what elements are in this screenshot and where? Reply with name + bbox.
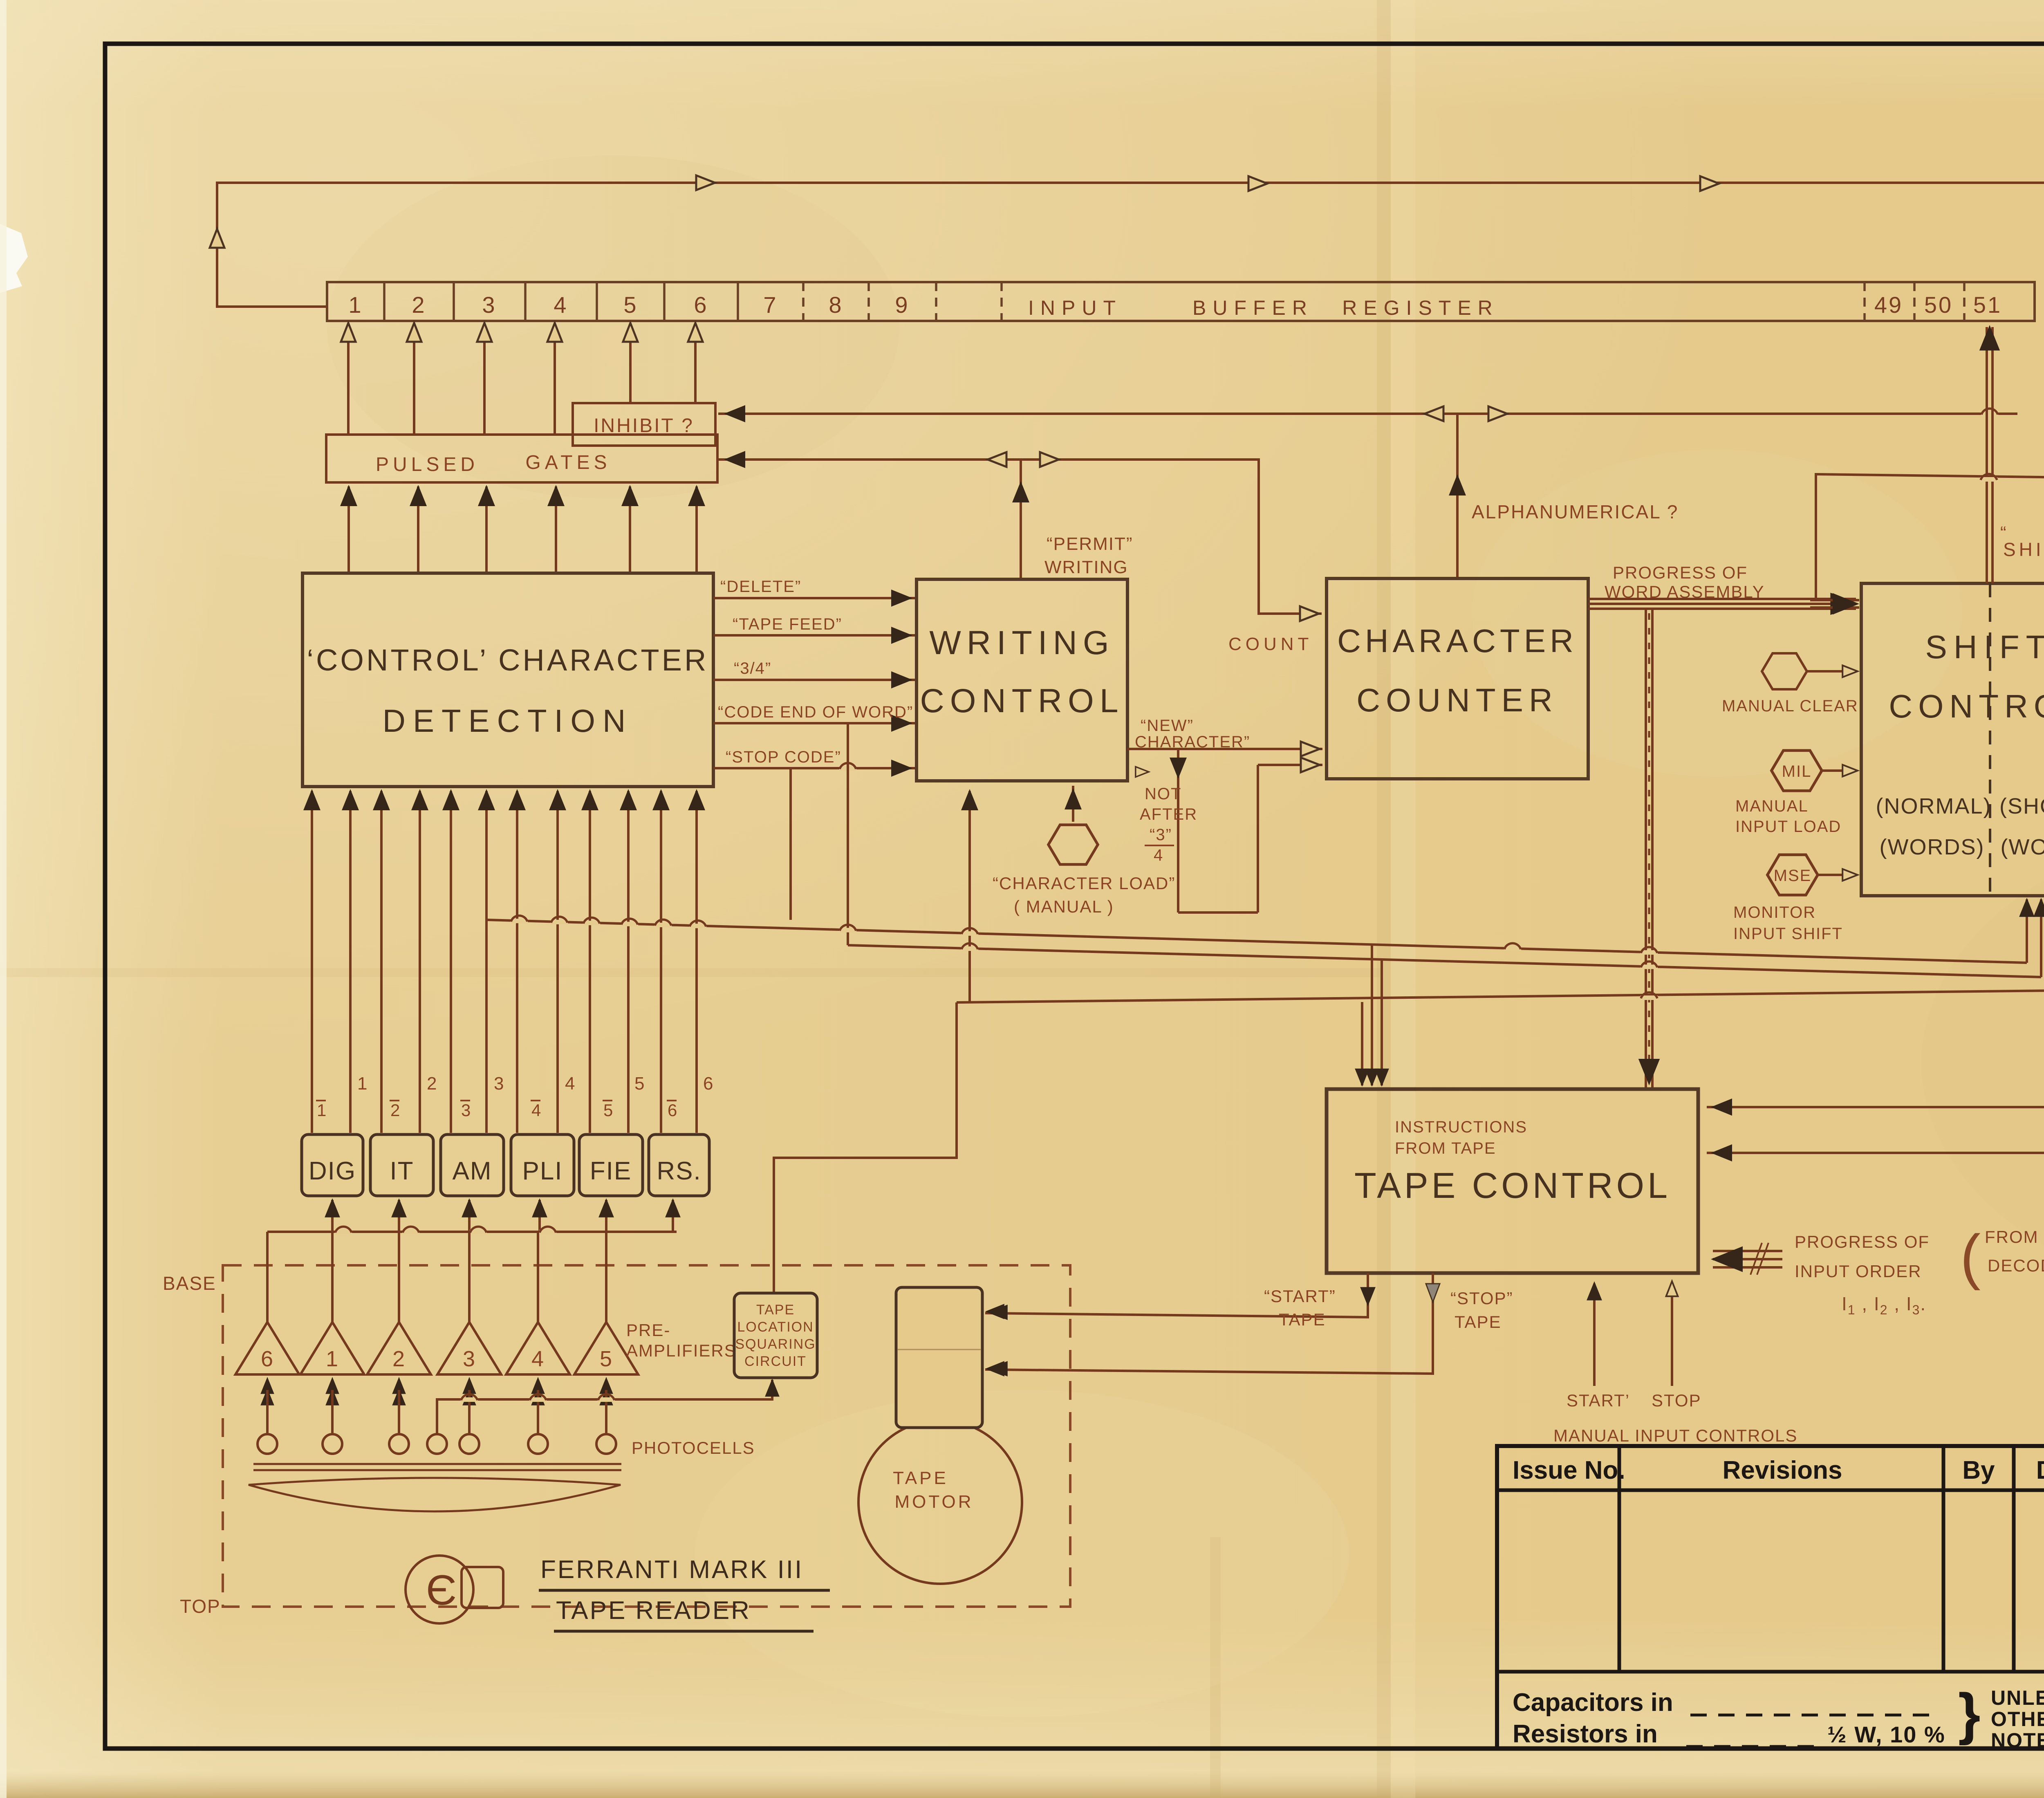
svg-text:INPUT LOAD: INPUT LOAD bbox=[1735, 818, 1841, 836]
svg-text:MOTOR: MOTOR bbox=[895, 1492, 974, 1512]
svg-text:LOCATION: LOCATION bbox=[737, 1319, 814, 1335]
svg-text:2: 2 bbox=[390, 1101, 401, 1120]
svg-text:AFTER: AFTER bbox=[1140, 805, 1197, 823]
svg-text:50: 50 bbox=[1924, 292, 1953, 318]
svg-text:2: 2 bbox=[427, 1074, 437, 1094]
svg-text:DIG: DIG bbox=[309, 1157, 356, 1185]
svg-text:SHIFT: SHIFT bbox=[1925, 629, 2044, 665]
svg-text:FROM TAPE: FROM TAPE bbox=[1395, 1139, 1496, 1157]
svg-text:CHARACTER”: CHARACTER” bbox=[1135, 733, 1250, 751]
svg-text:“TAPE FEED”: “TAPE FEED” bbox=[733, 615, 842, 633]
svg-text:FROM ORDER: FROM ORDER bbox=[1985, 1227, 2044, 1246]
svg-text:6: 6 bbox=[668, 1101, 678, 1120]
svg-text:“CHARACTER LOAD”: “CHARACTER LOAD” bbox=[993, 874, 1175, 893]
svg-text:3: 3 bbox=[461, 1101, 471, 1120]
svg-text:1: 1 bbox=[317, 1101, 327, 1120]
svg-text:3: 3 bbox=[494, 1074, 504, 1094]
svg-text:FIE: FIE bbox=[590, 1157, 632, 1185]
svg-text:SQUARING: SQUARING bbox=[735, 1336, 816, 1352]
svg-text:4: 4 bbox=[531, 1347, 545, 1371]
svg-text:CONTROL: CONTROL bbox=[920, 682, 1124, 720]
svg-text:3: 3 bbox=[463, 1347, 476, 1371]
svg-text:“3”: “3” bbox=[1150, 826, 1172, 844]
svg-text:1: 1 bbox=[326, 1347, 339, 1371]
svg-text:4: 4 bbox=[565, 1074, 576, 1094]
svg-text:RS.: RS. bbox=[657, 1157, 701, 1185]
svg-text:TAPE CONTROL: TAPE CONTROL bbox=[1354, 1165, 1671, 1206]
svg-text:SHIFT: SHIFT bbox=[2003, 539, 2044, 560]
svg-text:CHARACTER: CHARACTER bbox=[1337, 623, 1578, 659]
svg-text:NOTED: NOTED bbox=[1991, 1729, 2044, 1752]
svg-text:Capacitors in: Capacitors in bbox=[1513, 1688, 1673, 1717]
svg-text:PROGRESS OF: PROGRESS OF bbox=[1795, 1232, 1930, 1251]
svg-text:IT: IT bbox=[390, 1157, 414, 1185]
svg-text:WRITING: WRITING bbox=[929, 624, 1114, 661]
svg-text:COUNTER: COUNTER bbox=[1356, 682, 1558, 718]
svg-text:( MANUAL ): ( MANUAL ) bbox=[1014, 897, 1114, 916]
svg-text:“PERMIT”: “PERMIT” bbox=[1047, 534, 1133, 554]
svg-text:7: 7 bbox=[763, 292, 778, 318]
svg-text:NOT: NOT bbox=[1145, 785, 1181, 803]
svg-text:MANUAL CLEAR: MANUAL CLEAR bbox=[1722, 697, 1858, 715]
svg-text:TAPE: TAPE bbox=[756, 1302, 795, 1318]
svg-text:PLI: PLI bbox=[522, 1157, 563, 1185]
svg-text:“STOP”: “STOP” bbox=[1450, 1289, 1513, 1308]
svg-text:1: 1 bbox=[357, 1074, 368, 1094]
svg-text:6: 6 bbox=[694, 292, 708, 318]
svg-text:“CODE END OF WORD”: “CODE END OF WORD” bbox=[718, 703, 913, 721]
svg-text:“3/4”: “3/4” bbox=[734, 659, 771, 677]
svg-text:Є: Є bbox=[426, 1567, 457, 1614]
svg-text:“NEW”: “NEW” bbox=[1141, 717, 1194, 735]
svg-text:INPUT SHIFT: INPUT SHIFT bbox=[1733, 925, 1843, 943]
svg-text:(WORDS): (WORDS) bbox=[2001, 835, 2044, 859]
svg-text:“START”: “START” bbox=[1264, 1287, 1336, 1306]
svg-text:2: 2 bbox=[412, 292, 426, 318]
svg-text:3: 3 bbox=[482, 292, 496, 318]
svg-text:MIL: MIL bbox=[1782, 762, 1812, 780]
svg-text:MSE: MSE bbox=[1774, 867, 1812, 885]
svg-text:CIRCUIT: CIRCUIT bbox=[744, 1354, 807, 1369]
svg-text:8: 8 bbox=[829, 292, 843, 318]
svg-text:WRITING: WRITING bbox=[1044, 557, 1128, 577]
svg-text:TAPE: TAPE bbox=[1455, 1312, 1502, 1332]
svg-text:(WORDS): (WORDS) bbox=[1880, 835, 1985, 859]
svg-text:51: 51 bbox=[1973, 292, 2002, 318]
svg-text:MANUAL INPUT CONTROLS: MANUAL INPUT CONTROLS bbox=[1553, 1426, 1797, 1445]
svg-text:BASE: BASE bbox=[163, 1273, 216, 1294]
svg-text:MANUAL: MANUAL bbox=[1735, 797, 1809, 815]
svg-text:FERRANTI MARK III: FERRANTI MARK III bbox=[540, 1556, 803, 1584]
svg-text:CONTROL: CONTROL bbox=[1889, 688, 2044, 724]
svg-text:AMPLIFIERS: AMPLIFIERS bbox=[626, 1341, 737, 1360]
svg-text:DETECTION: DETECTION bbox=[383, 703, 633, 739]
svg-text:6: 6 bbox=[261, 1347, 274, 1371]
svg-text:ALPHANUMERICAL ?: ALPHANUMERICAL ? bbox=[1472, 501, 1679, 522]
svg-text:TOP: TOP bbox=[180, 1596, 221, 1617]
svg-text:‘CONTROL’ CHARACTER: ‘CONTROL’ CHARACTER bbox=[307, 643, 709, 677]
svg-text:}: } bbox=[1958, 1681, 1980, 1746]
svg-text:PRE-: PRE- bbox=[626, 1320, 670, 1340]
svg-text:MONITOR: MONITOR bbox=[1733, 903, 1816, 921]
svg-text:TAPE READER: TAPE READER bbox=[556, 1596, 751, 1625]
svg-text:TAPE: TAPE bbox=[893, 1468, 948, 1488]
svg-text:4: 4 bbox=[1154, 846, 1163, 864]
svg-text:“DELETE”: “DELETE” bbox=[720, 578, 801, 596]
svg-text:“STOP CODE”: “STOP CODE” bbox=[726, 748, 841, 766]
svg-text:PULSED: PULSED bbox=[376, 454, 479, 475]
svg-text:Date: Date bbox=[2036, 1456, 2044, 1484]
svg-text:½ W, 10 %: ½ W, 10 % bbox=[1827, 1722, 1945, 1747]
svg-text:GATES: GATES bbox=[525, 452, 611, 473]
svg-text:TAPE: TAPE bbox=[1279, 1310, 1326, 1329]
svg-text:AM: AM bbox=[453, 1157, 492, 1185]
svg-text:9: 9 bbox=[895, 292, 909, 318]
svg-text:(: ( bbox=[1960, 1222, 1981, 1291]
svg-text:(NORMAL): (NORMAL) bbox=[1876, 794, 1992, 818]
svg-text:6: 6 bbox=[703, 1074, 714, 1094]
svg-text:4: 4 bbox=[531, 1101, 542, 1120]
svg-text:49: 49 bbox=[1874, 292, 1903, 318]
svg-text:By: By bbox=[1962, 1456, 1995, 1484]
svg-text:PHOTOCELLS: PHOTOCELLS bbox=[632, 1438, 755, 1457]
svg-text:STOP: STOP bbox=[1652, 1391, 1701, 1410]
svg-text:5: 5 bbox=[600, 1347, 613, 1371]
svg-text:REGISTER: REGISTER bbox=[1342, 296, 1499, 319]
svg-text:5: 5 bbox=[603, 1101, 614, 1120]
svg-text:5: 5 bbox=[634, 1074, 645, 1094]
svg-text:2: 2 bbox=[392, 1347, 406, 1371]
svg-text:INPUT ORDER: INPUT ORDER bbox=[1795, 1262, 1922, 1281]
svg-text:PROGRESS OF: PROGRESS OF bbox=[1613, 563, 1748, 582]
svg-text:DECODER: DECODER bbox=[1988, 1256, 2044, 1275]
svg-text:(SHORT ): (SHORT ) bbox=[1999, 794, 2044, 818]
svg-text:OTHERWISE: OTHERWISE bbox=[1991, 1708, 2044, 1731]
svg-text:5: 5 bbox=[623, 292, 638, 318]
svg-text:Resistors in: Resistors in bbox=[1513, 1720, 1658, 1748]
svg-text:COUNT: COUNT bbox=[1228, 634, 1313, 654]
svg-text:INSTRUCTIONS: INSTRUCTIONS bbox=[1395, 1118, 1527, 1136]
svg-text:INPUT: INPUT bbox=[1028, 296, 1122, 319]
svg-text:START’: START’ bbox=[1567, 1391, 1630, 1410]
svg-text:1: 1 bbox=[348, 292, 363, 318]
svg-text:BUFFER: BUFFER bbox=[1192, 296, 1313, 319]
svg-text:4: 4 bbox=[554, 292, 568, 318]
svg-text:UNLESS: UNLESS bbox=[1991, 1686, 2044, 1709]
svg-text:Issue No.: Issue No. bbox=[1513, 1456, 1625, 1484]
svg-text:Revisions: Revisions bbox=[1723, 1456, 1842, 1484]
